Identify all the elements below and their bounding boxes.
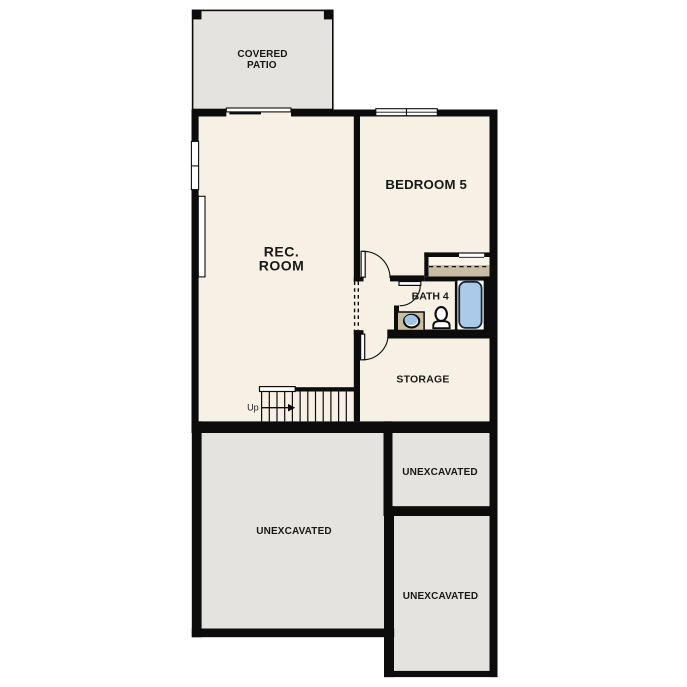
svg-text:BEDROOM 5: BEDROOM 5 [385,177,467,192]
svg-text:Up: Up [247,403,259,413]
svg-text:UNEXCAVATED: UNEXCAVATED [403,591,479,602]
svg-text:UNEXCAVATED: UNEXCAVATED [402,467,478,478]
svg-text:ROOM: ROOM [259,258,305,274]
svg-text:COVERED: COVERED [237,49,287,60]
svg-text:BATH 4: BATH 4 [412,290,449,302]
svg-text:PATIO: PATIO [247,60,277,71]
svg-text:UNEXCAVATED: UNEXCAVATED [256,526,332,537]
svg-text:STORAGE: STORAGE [396,374,449,386]
